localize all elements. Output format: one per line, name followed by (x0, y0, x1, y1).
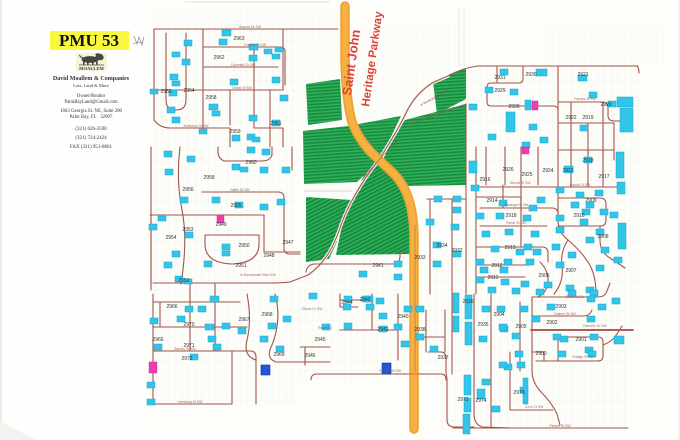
svg-text:2925: 2925 (521, 172, 532, 178)
svg-text:2929: 2929 (494, 88, 505, 94)
svg-text:2972: 2972 (181, 356, 192, 362)
svg-text:2945: 2945 (314, 337, 325, 343)
svg-text:2953: 2953 (182, 227, 193, 233)
svg-text:2909: 2909 (585, 198, 596, 204)
svg-text:2908: 2908 (597, 234, 608, 240)
svg-text:2930: 2930 (525, 72, 536, 78)
svg-text:2938: 2938 (414, 327, 425, 333)
svg-text:2913: 2913 (504, 245, 515, 251)
svg-text:2973: 2973 (513, 390, 524, 396)
svg-text:Palm Bay, FL 32907: Palm Bay, FL 32907 (70, 115, 113, 120)
svg-text:2950: 2950 (238, 243, 249, 249)
svg-text:2963: 2963 (160, 89, 171, 95)
svg-text:2946: 2946 (304, 353, 315, 359)
svg-text:2918: 2918 (505, 213, 516, 219)
svg-text:Cedar St SW: Cedar St SW (232, 86, 253, 90)
svg-text:Kapok Ct SW: Kapok Ct SW (570, 183, 591, 187)
svg-text:2974: 2974 (475, 398, 486, 404)
svg-text:2947: 2947 (282, 240, 293, 246)
svg-text:2933: 2933 (414, 255, 425, 261)
svg-text:2955: 2955 (230, 203, 241, 209)
svg-text:2903: 2903 (555, 304, 566, 310)
svg-text:2962: 2962 (213, 55, 224, 61)
svg-text:Skinner St SW: Skinner St SW (379, 369, 402, 373)
svg-text:2912: 2912 (491, 263, 502, 269)
svg-text:2914: 2914 (486, 198, 497, 204)
svg-text:2937: 2937 (437, 355, 448, 361)
svg-text:PalmBayLand@Gmail.com: PalmBayLand@Gmail.com (64, 100, 118, 105)
svg-text:2934: 2934 (436, 243, 447, 249)
svg-text:2966: 2966 (166, 304, 177, 310)
svg-text:2958: 2958 (205, 95, 216, 101)
svg-text:2970: 2970 (183, 322, 194, 328)
svg-text:2963: 2963 (233, 36, 244, 42)
svg-text:2931: 2931 (494, 75, 505, 81)
svg-text:2942: 2942 (377, 327, 388, 333)
svg-text:2911: 2911 (488, 275, 499, 281)
svg-text:2918: 2918 (582, 158, 593, 164)
svg-text:2910: 2910 (573, 213, 584, 219)
svg-text:2917: 2917 (598, 174, 609, 180)
svg-text:le Bombardier Blvd SW: le Bombardier Blvd SW (240, 273, 276, 277)
svg-text:2951: 2951 (235, 263, 246, 269)
svg-text:Corvetan Dr SW: Corvetan Dr SW (231, 63, 256, 67)
svg-text:2969: 2969 (273, 352, 284, 358)
svg-text:2941: 2941 (372, 263, 383, 269)
svg-text:PMU 53: PMU 53 (59, 31, 119, 50)
svg-text:2960: 2960 (245, 160, 256, 166)
svg-text:Burney St SW: Burney St SW (174, 347, 196, 351)
svg-text:MOALLEM: MOALLEM (79, 66, 104, 71)
svg-text:Dakner St SW: Dakner St SW (554, 312, 576, 316)
svg-text:2943: 2943 (359, 297, 370, 303)
svg-text:Owner/Realtor: Owner/Realtor (77, 94, 106, 99)
svg-text:2952: 2952 (178, 278, 189, 284)
svg-text:Angora Dr SW: Angora Dr SW (239, 25, 262, 29)
svg-text:2968: 2968 (261, 312, 272, 318)
svg-text:2907: 2907 (565, 268, 576, 274)
svg-text:2932: 2932 (451, 248, 462, 254)
svg-text:2954: 2954 (165, 235, 176, 241)
svg-text:2920: 2920 (600, 102, 611, 108)
svg-text:2973: 2973 (457, 397, 468, 403)
svg-text:Demoire Dr SW: Demoire Dr SW (583, 324, 608, 328)
svg-text:2964: 2964 (183, 88, 194, 94)
svg-text:Farrar St SW: Farrar St SW (506, 221, 527, 225)
svg-text:2944: 2944 (341, 300, 352, 306)
svg-text:Kentucky Dr SW: Kentucky Dr SW (184, 124, 210, 128)
svg-text:2921: 2921 (577, 72, 588, 78)
svg-text:Pintare St SW: Pintare St SW (549, 424, 571, 428)
svg-text:2906: 2906 (538, 273, 549, 279)
svg-text:2967: 2967 (238, 317, 249, 323)
svg-text:2900: 2900 (535, 351, 546, 357)
svg-text:2958: 2958 (203, 175, 214, 181)
svg-text:2935: 2935 (477, 322, 488, 328)
svg-text:2926: 2926 (502, 167, 513, 173)
svg-text:Cove Ct SW: Cove Ct SW (525, 405, 544, 409)
svg-text:Ottose Cr SW: Ottose Cr SW (302, 307, 324, 311)
svg-text:(321) 724-2424: (321) 724-2424 (75, 136, 107, 141)
svg-text:2948: 2948 (263, 253, 274, 259)
svg-text:Vercott St SW: Vercott St SW (509, 181, 531, 185)
svg-text:2901: 2901 (575, 337, 586, 343)
svg-text:(321) 626-3590: (321) 626-3590 (75, 127, 107, 132)
svg-text:2922: 2922 (565, 115, 576, 121)
svg-text:2904: 2904 (493, 312, 504, 318)
svg-text:Fogarty St SW: Fogarty St SW (244, 43, 267, 47)
svg-text:2949: 2949 (215, 222, 226, 228)
svg-text:Revell Ct: Revell Ct (318, 326, 332, 330)
svg-text:2956: 2956 (182, 187, 193, 193)
svg-text:2936: 2936 (462, 299, 473, 305)
svg-text:2959: 2959 (229, 129, 240, 135)
svg-text:2916: 2916 (479, 177, 490, 183)
svg-text:Facelia St SW: Facelia St SW (574, 97, 596, 101)
svg-text:Saratoga St SW: Saratoga St SW (504, 203, 529, 207)
svg-text:Saffie St SW: Saffie St SW (230, 188, 250, 192)
svg-text:FAX (321) 951-8861: FAX (321) 951-8861 (70, 145, 113, 150)
svg-text:Dune St SW: Dune St SW (566, 295, 585, 299)
svg-text:2919: 2919 (582, 115, 593, 121)
svg-text:Fidalgo St SW: Fidalgo St SW (572, 355, 594, 359)
svg-text:David Moallem & Companies: David Moallem & Companies (53, 76, 130, 82)
svg-text:Leesburg St SW: Leesburg St SW (178, 400, 203, 404)
svg-text:2905: 2905 (515, 324, 526, 330)
svg-text:2923: 2923 (562, 168, 573, 174)
svg-text:2961: 2961 (270, 121, 281, 127)
svg-text:2928: 2928 (508, 104, 519, 110)
svg-text:2966: 2966 (152, 337, 163, 343)
svg-text:1663 Georgia St. NE, Suite 200: 1663 Georgia St. NE, Suite 200 (60, 109, 123, 114)
svg-text:2940: 2940 (397, 314, 408, 320)
svg-text:2924: 2924 (542, 168, 553, 174)
svg-text:2902: 2902 (546, 320, 557, 326)
